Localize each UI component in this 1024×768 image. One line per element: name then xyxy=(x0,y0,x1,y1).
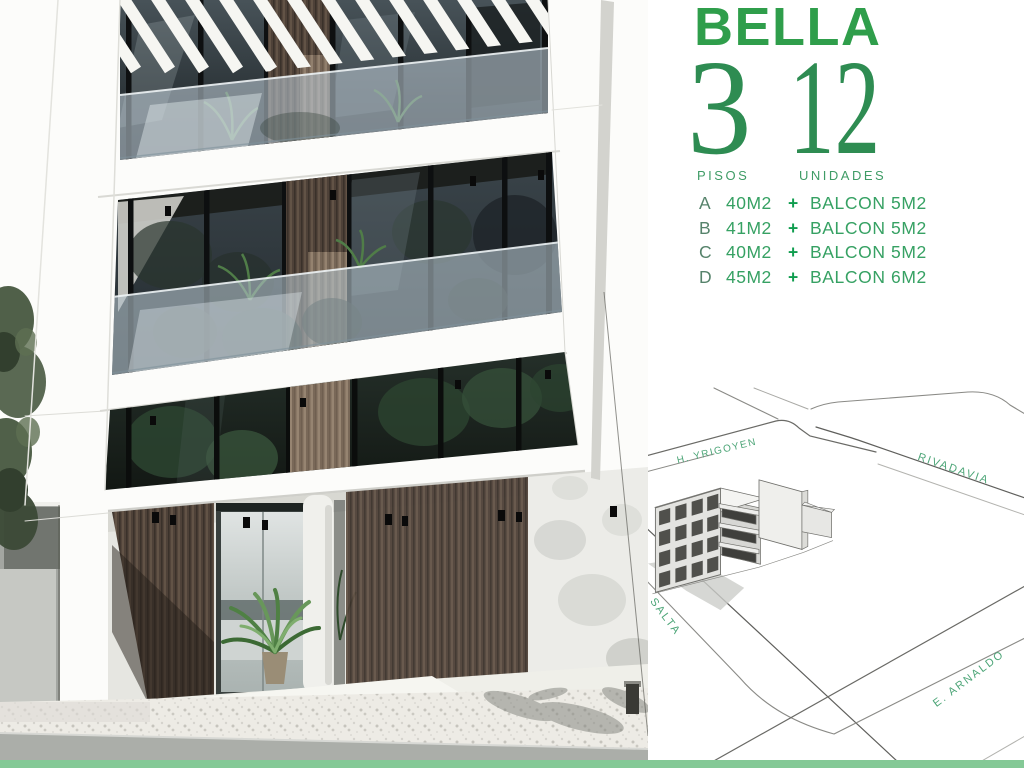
unit-row-a: A 40M2 + BALCON 5M2 xyxy=(699,193,927,218)
unit-letter: B xyxy=(699,218,726,239)
units-label: UNIDADES xyxy=(799,168,886,183)
footer-accent-bar xyxy=(0,760,1024,768)
floors-count: 3 xyxy=(687,40,752,176)
unit-size: 45M2 xyxy=(726,267,788,288)
unit-size: 40M2 xyxy=(726,242,788,263)
plus-sign: + xyxy=(788,267,810,288)
unit-size: 41M2 xyxy=(726,218,788,239)
location-map xyxy=(648,378,1024,760)
entrance-wood-panel-right xyxy=(346,477,528,686)
floors-label: PISOS xyxy=(697,168,749,183)
building-render-photo xyxy=(0,0,648,762)
unit-list: A 40M2 + BALCON 5M2 B 41M2 + BALCON 5M2 … xyxy=(699,193,927,291)
unit-letter: C xyxy=(699,242,726,263)
units-count: 12 xyxy=(789,40,880,176)
unit-row-c: C 40M2 + BALCON 5M2 xyxy=(699,242,927,267)
plus-sign: + xyxy=(788,218,810,239)
unit-letter: D xyxy=(699,267,726,288)
unit-size: 40M2 xyxy=(726,193,788,214)
unit-row-d: D 45M2 + BALCON 6M2 xyxy=(699,267,927,292)
entrance-pillar xyxy=(299,495,339,699)
unit-balcony: BALCON 6M2 xyxy=(810,267,927,288)
unit-balcony: BALCON 5M2 xyxy=(810,218,927,239)
plus-sign: + xyxy=(788,242,810,263)
plus-sign: + xyxy=(788,193,810,214)
unit-balcony: BALCON 5M2 xyxy=(810,193,927,214)
unit-row-b: B 41M2 + BALCON 5M2 xyxy=(699,218,927,243)
utility-pole xyxy=(626,684,639,714)
unit-balcony: BALCON 5M2 xyxy=(810,242,927,263)
map-building-sketch xyxy=(648,480,834,610)
flyer-page: BELLA 3 12 PISOS UNIDADES A 40M2 + BALCO… xyxy=(0,0,1024,768)
unit-letter: A xyxy=(699,193,726,214)
